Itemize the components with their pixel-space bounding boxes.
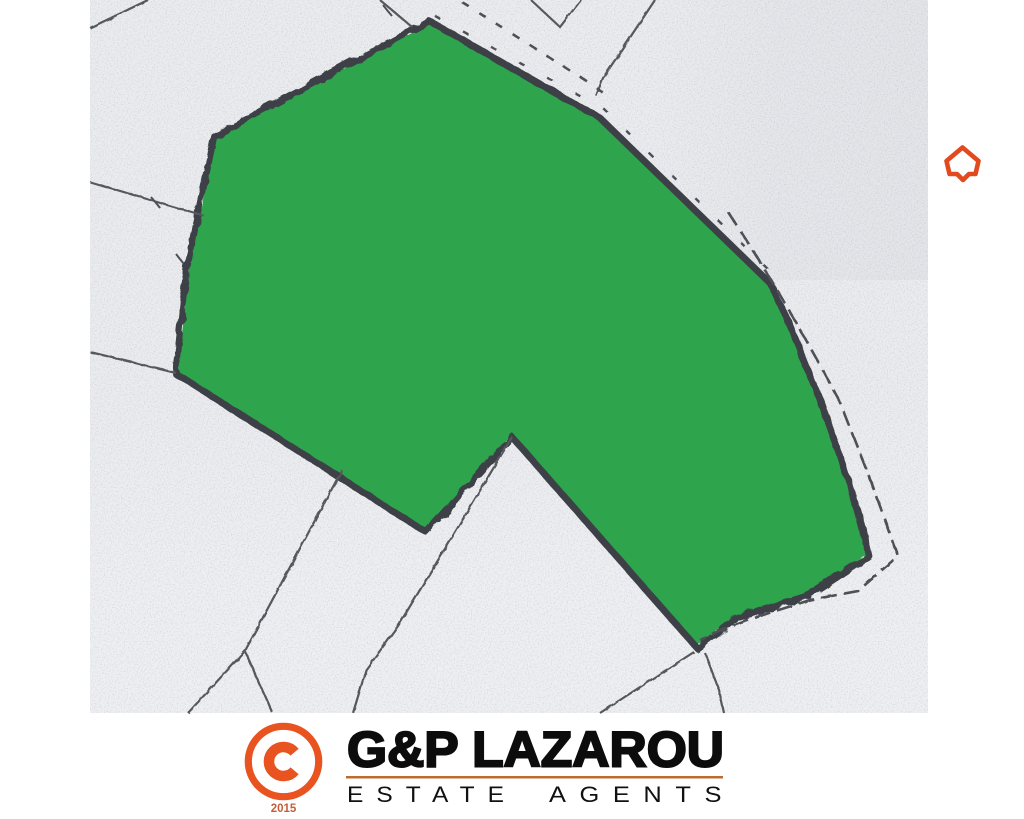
svg-text:2015: 2015 (271, 803, 297, 815)
svg-text:ESTATEAGENTS: ESTATEAGENTS (347, 782, 735, 807)
svg-text:G&P LAZAROU: G&P LAZAROU (347, 722, 724, 778)
